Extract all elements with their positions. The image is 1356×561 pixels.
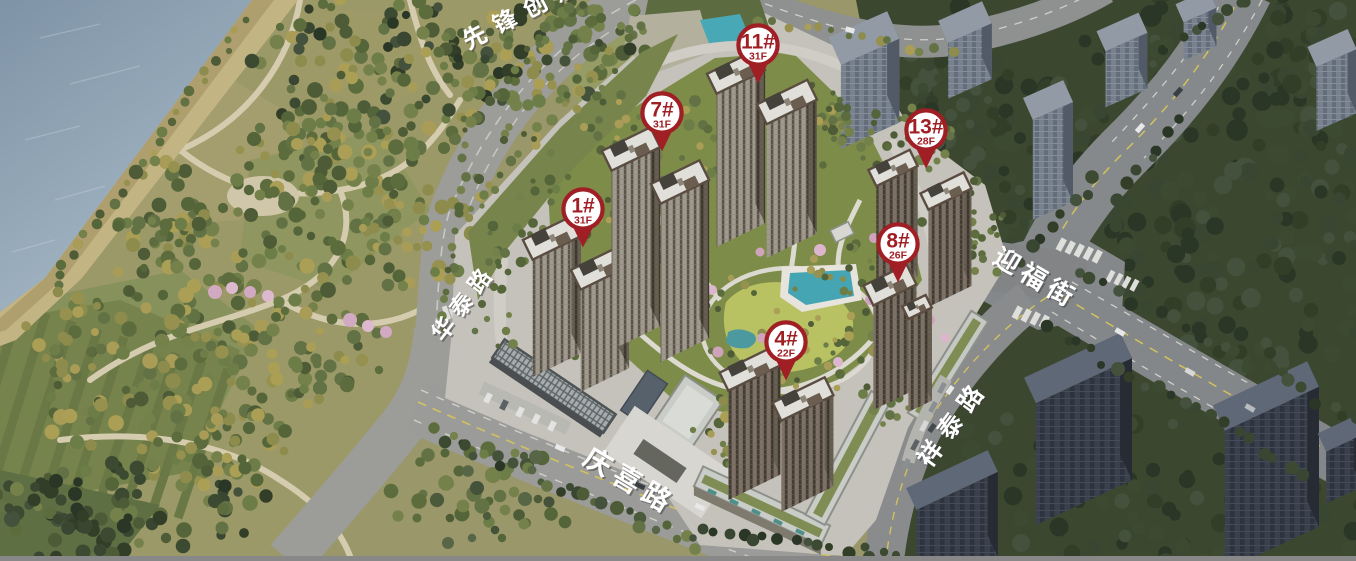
svg-text:28F: 28F [917,136,936,148]
svg-text:31F: 31F [749,51,768,63]
svg-text:26F: 26F [889,250,908,262]
svg-text:31F: 31F [653,119,672,131]
svg-text:22F: 22F [777,348,796,360]
svg-text:31F: 31F [574,215,593,227]
